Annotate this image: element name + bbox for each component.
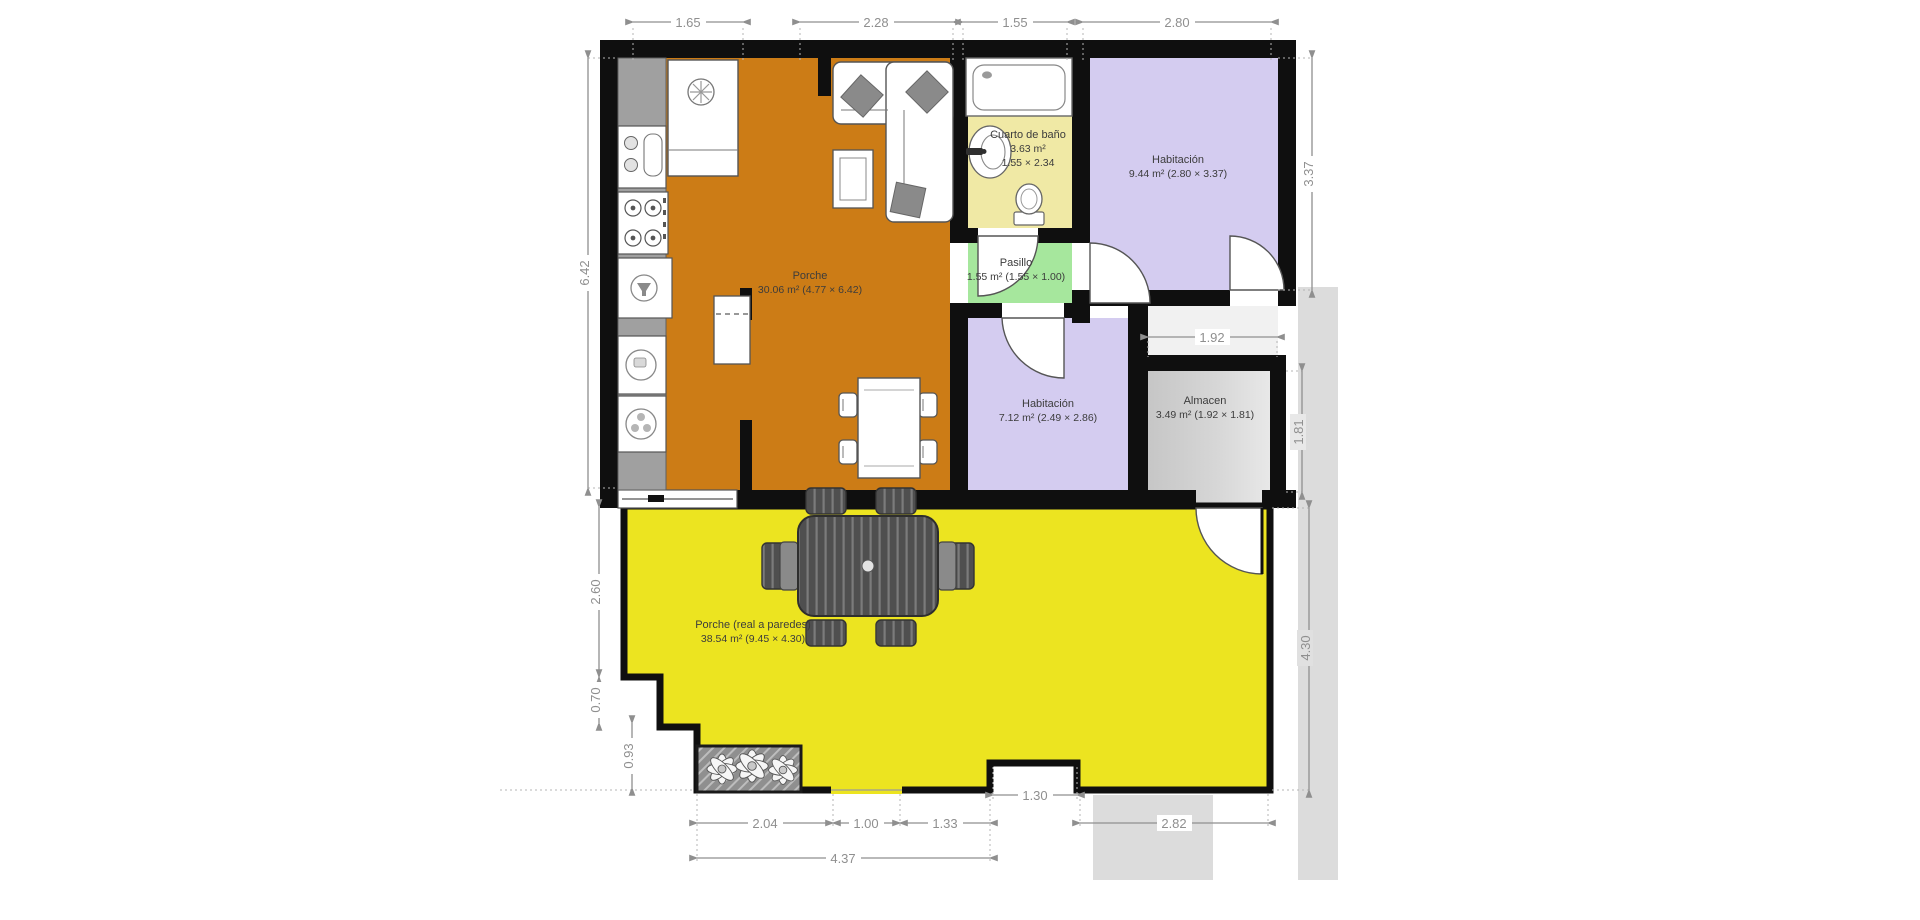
svg-text:3.49 m² (1.92 × 1.81): 3.49 m² (1.92 × 1.81) (1156, 409, 1254, 421)
stove-icon (618, 192, 668, 254)
dim-top-2: 2.28 (863, 15, 888, 30)
dim-top-3: 1.55 (1002, 15, 1027, 30)
washer-icon (618, 336, 666, 394)
kitchen-island (714, 296, 750, 364)
svg-text:3.63 m²: 3.63 m² (1010, 143, 1046, 155)
dim-bottom-6: 4.37 (830, 851, 855, 866)
dim-right-2: 1.92 (1199, 330, 1224, 345)
toilet-icon (1014, 184, 1044, 225)
dim-right-3: 1.81 (1291, 419, 1306, 444)
svg-text:Porche (real a paredes): Porche (real a paredes) (695, 619, 811, 631)
dim-bottom-5: 2.82 (1161, 816, 1186, 831)
dim-right-4: 4.30 (1298, 635, 1313, 660)
dim-bottom-3: 1.33 (932, 816, 957, 831)
dim-bottom-4: 1.30 (1022, 788, 1047, 803)
floor-plan-canvas: Porche 30.06 m² (4.77 × 6.42) Cuarto de … (0, 0, 1920, 920)
sliding-door (618, 490, 737, 508)
sink-icon (618, 126, 666, 188)
svg-text:38.54 m² (9.45 × 4.30): 38.54 m² (9.45 × 4.30) (701, 633, 805, 645)
floor-plan-svg: Porche 30.06 m² (4.77 × 6.42) Cuarto de … (0, 0, 1920, 920)
room-almacen (1148, 371, 1270, 508)
svg-text:Cuarto de baño: Cuarto de baño (990, 129, 1066, 141)
svg-text:Habitación: Habitación (1152, 154, 1204, 166)
planter (697, 746, 801, 792)
dim-top-1: 1.65 (675, 15, 700, 30)
oven-icon (618, 258, 672, 318)
wall-stub-kitchen-lower (740, 420, 752, 492)
svg-text:Habitación: Habitación (1022, 398, 1074, 410)
bathtub-icon (966, 58, 1072, 116)
dim-left-4: 0.93 (621, 743, 636, 768)
dim-left-2: 2.60 (588, 579, 603, 604)
svg-text:9.44 m² (2.80 × 3.37): 9.44 m² (2.80 × 3.37) (1129, 168, 1227, 180)
svg-text:Almacen: Almacen (1184, 395, 1227, 407)
dim-left-3: 0.70 (588, 687, 603, 712)
dim-left-1: 6.42 (577, 260, 592, 285)
fridge-icon (668, 60, 738, 176)
svg-text:1.55 × 2.34: 1.55 × 2.34 (1002, 157, 1055, 169)
svg-text:1.55 m² (1.55 × 1.00): 1.55 m² (1.55 × 1.00) (967, 271, 1065, 283)
svg-text:Porche: Porche (793, 270, 828, 282)
svg-text:Pasillo: Pasillo (1000, 257, 1032, 269)
svg-text:7.12 m² (2.49 × 2.86): 7.12 m² (2.49 × 2.86) (999, 412, 1097, 424)
dryer-icon (618, 396, 666, 452)
dining-table (858, 378, 920, 478)
wall-stub-top (818, 58, 831, 96)
svg-text:30.06 m² (4.77 × 6.42): 30.06 m² (4.77 × 6.42) (758, 284, 862, 296)
dim-right-1: 3.37 (1301, 161, 1316, 186)
dim-top-4: 2.80 (1164, 15, 1189, 30)
dim-bottom-1: 2.04 (752, 816, 777, 831)
coffee-table (833, 150, 873, 208)
dim-bottom-2: 1.00 (853, 816, 878, 831)
